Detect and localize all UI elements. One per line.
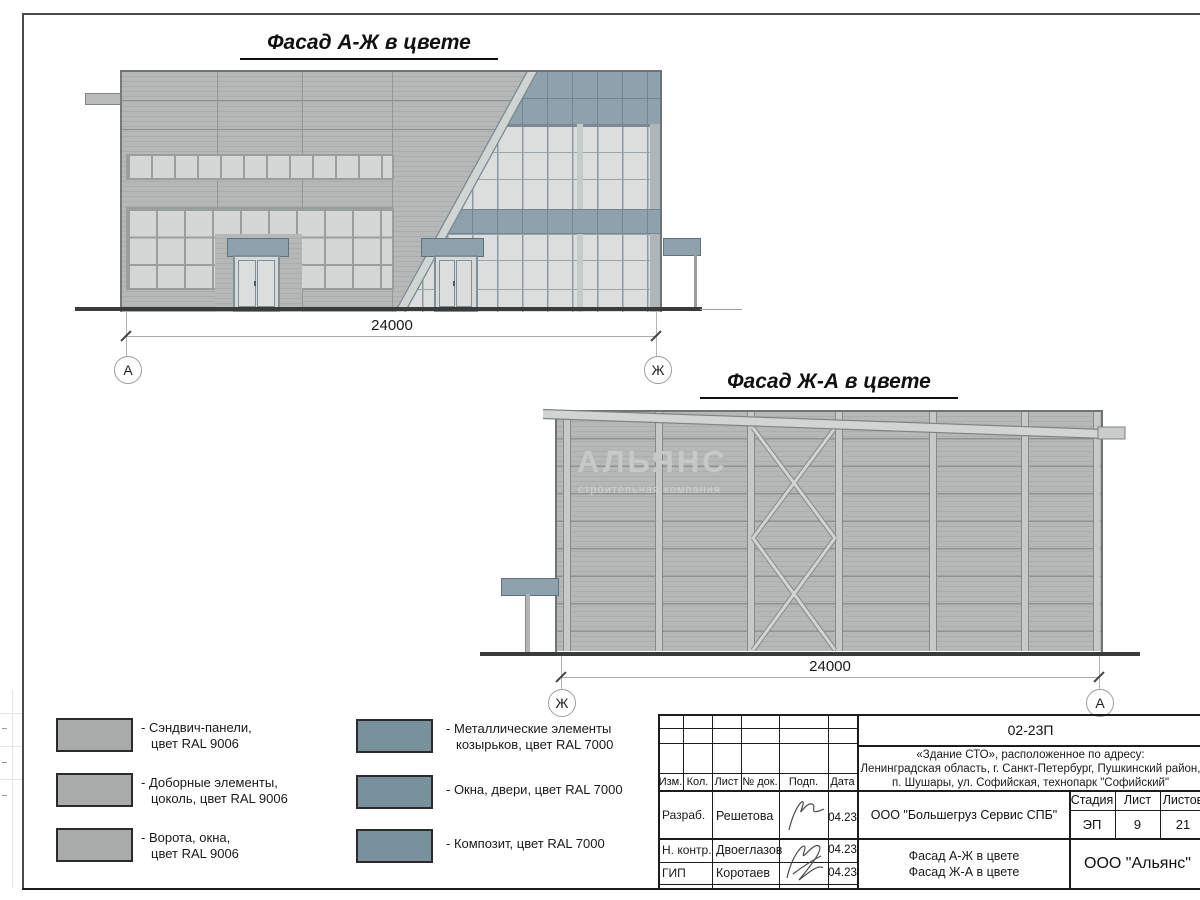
tb-col-data: Дата [828,773,857,790]
margin-mark [2,762,7,763]
axis-marker-a: А [114,356,142,384]
legend-line: цвет RAL 9006 [141,736,239,751]
canopy-post [694,254,697,308]
tb-line [712,714,713,888]
door-leaf [456,260,472,307]
dimension-line [126,336,657,337]
tb-project-line: п. Шушары, ул. Софийская, технопарк "Соф… [892,776,1169,790]
tb-date: 04.23 [828,838,857,862]
frame-faint-hline [0,779,22,780]
frame-left-line [22,13,24,890]
entrance-door [434,255,478,312]
door-handle [453,281,455,286]
facade-aj-title: Фасад А-Ж в цвете [240,31,498,60]
tb-project-line: «Здание СТО», расположенное по адресу: [916,748,1144,762]
legend-swatch-windows [356,775,433,809]
signature-strokes [779,790,828,888]
side-canopy [501,578,559,596]
tb-col-kol: Кол. [683,773,712,790]
tb-role-razrab: Разраб. [662,808,705,822]
legend-swatch-composite [356,829,433,863]
watermark-subtitle: строительная компания [578,484,721,496]
tb-stage-label: Стадия [1069,790,1115,810]
axis-marker-a: А [1086,689,1114,717]
frame-faint-vline [12,690,13,888]
legend-swatch-gates [56,828,133,862]
tb-col-izm: Изм. [658,773,683,790]
margin-mark [2,795,7,796]
legend-label: - Композит, цвет RAL 7000 [446,836,605,852]
frame-top-line [22,13,1200,15]
tb-name-korotaev: Коротаев [716,866,770,880]
legend-line: - Композит, цвет RAL 7000 [446,836,605,851]
legend-line: - Ворота, окна, [141,830,230,845]
tb-sheets-label: Листов [1160,790,1200,810]
watermark-logo: АЛЬЯНС [577,444,728,480]
tb-date: 04.23 [828,798,857,838]
tb-company: ООО "Альянс" [1071,840,1200,888]
tb-name-dvoeglazov: Двоеглазов [716,843,782,857]
facade-ja-title: Фасад Ж-А в цвете [700,370,958,399]
legend-line: козырьков, цвет RAL 7000 [446,737,613,752]
margin-mark [2,728,7,729]
legend-line: цоколь, цвет RAL 9006 [141,791,288,806]
entrance-door [233,255,280,312]
diagonal-mullion [122,72,660,312]
tb-line [658,714,660,890]
dimension-line [561,677,1100,678]
tb-name-reshetova: Решетова [716,809,773,823]
tb-col-podp: Подп. [779,773,828,790]
legend-swatch-sandwich [56,718,133,752]
tb-sheets-value: 21 [1160,810,1200,838]
facade-aj-building [120,70,662,312]
legend-line: - Доборные элементы, [141,775,278,790]
dimension-value: 24000 [715,658,945,675]
tb-stage-value: ЭП [1069,810,1115,838]
drawing-sheet: Фасад А-Ж в цвете [0,0,1200,900]
tb-content: Фасад А-Ж в цвете Фасад Ж-А в цвете [859,840,1069,888]
legend-swatch-trim [56,773,133,807]
legend-line: цвет RAL 9006 [141,846,239,861]
tb-project-desc: «Здание СТО», расположенное по адресу: Л… [859,747,1200,790]
door-handle [254,281,256,286]
tb-content-line: Фасад Ж-А в цвете [909,864,1020,880]
legend-label: - Окна, двери, цвет RAL 7000 [446,782,623,798]
tb-line [658,888,1200,890]
legend-line: - Сэндвич-панели, [141,720,252,735]
canopy-post [525,594,530,653]
ground-line-thin [700,309,742,310]
axis-marker-zh: Ж [548,689,576,717]
tb-content-line: Фасад А-Ж в цвете [909,848,1020,864]
tb-role-gip: ГИП [662,866,686,880]
legend-label: - Ворота, окна, цвет RAL 9006 [141,830,239,862]
frame-faint-hline [0,746,22,747]
axis-marker-zh: Ж [644,356,672,384]
tb-sheet-value: 9 [1115,810,1160,838]
legend-label: - Металлические элементы козырьков, цвет… [446,721,613,753]
frame-faint-hline [0,713,22,714]
tb-col-list: Лист [712,773,741,790]
legend-label: - Доборные элементы, цоколь, цвет RAL 90… [141,775,288,807]
legend-swatch-metal [356,719,433,753]
tb-sheet-label: Лист [1115,790,1160,810]
tb-col-ndok: № док. [741,773,779,790]
tb-client: ООО "Большегруз Сервис СПБ" [859,792,1069,838]
tb-role-nkontr: Н. контр. [662,843,712,857]
ground-line [480,652,1140,656]
tb-project-line: Ленинградская область, г. Санкт-Петербур… [861,762,1200,776]
ground-line [75,307,702,311]
door-leaf [257,260,275,307]
tb-doc-code: 02-23П [857,714,1200,745]
facade-aj-roof-outrigger [85,93,124,105]
legend-line: - Металлические элементы [446,721,611,736]
dimension-value: 24000 [277,317,507,334]
legend-label: - Сэндвич-панели, цвет RAL 9006 [141,720,252,752]
title-block: Изм. Кол. Лист № док. Подп. Дата Разраб.… [658,714,1200,890]
legend-line: - Окна, двери, цвет RAL 7000 [446,782,623,797]
tb-date: 04.23 [828,862,857,884]
